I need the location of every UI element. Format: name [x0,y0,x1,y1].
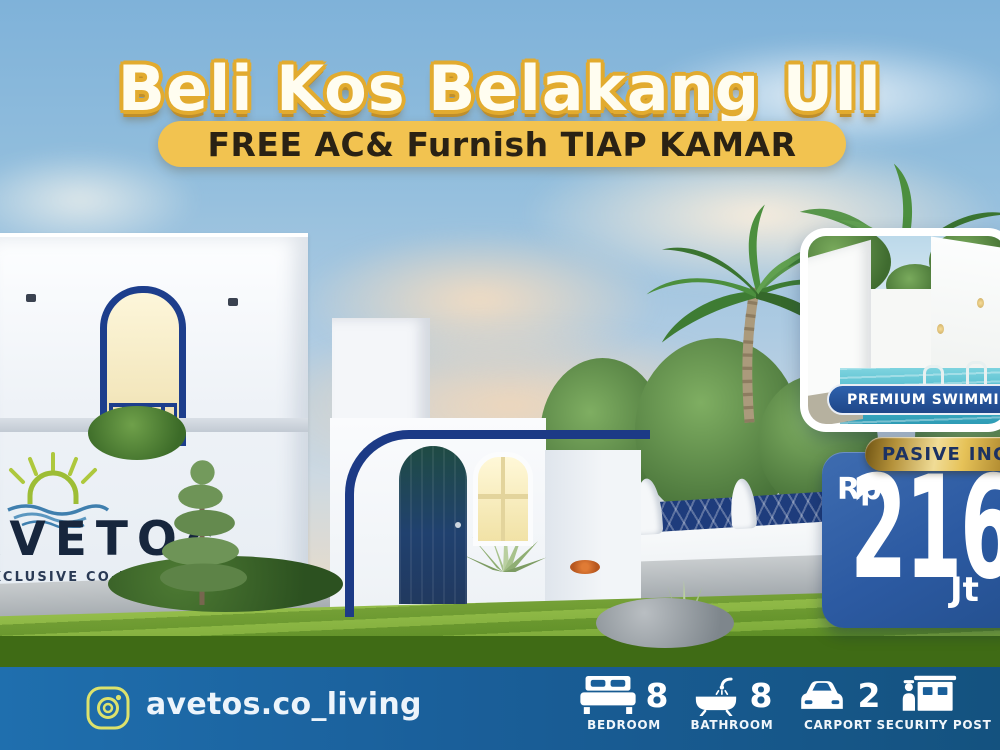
bedroom-label: BEDROOM [587,718,661,732]
wall-lamp [228,298,238,306]
footer-bar: avetos.co_living 8 BEDROOM [0,667,1000,750]
bathtub-icon [692,674,740,716]
amenity-bedroom: 8 BEDROOM [566,675,682,732]
price-unit: Jt [950,570,979,610]
car-icon [796,677,848,713]
entrance-window [473,452,533,546]
passive-income-badge: PASIVE INCOME [865,437,1000,471]
lawn [0,636,1000,668]
instagram-icon [84,684,132,732]
carport-label: CARPORT [804,718,872,732]
guard-post-icon [900,674,958,716]
rock [596,598,734,648]
bed-icon [580,676,636,714]
kos-advertisement-poster: ΛVETOς EXCLUSIVE CO-LIVING + PREMIUM SW [0,0,1000,750]
pool-ladder [966,361,987,386]
wall-lamp [26,294,36,302]
headline: Beli Kos Belakang UII [0,52,1000,125]
subheadline-pill: FREE AC& Furnish TIAP KAMAR [158,121,846,167]
pine-tree [150,438,255,610]
instagram-handle: avetos.co_living [146,687,422,722]
bathroom-count: 8 [750,676,773,715]
amenity-carport: 2 CARPORT [788,675,888,732]
pool-wall-lamp [937,324,944,334]
bathroom-label: BATHROOM [691,718,774,732]
flower-bush [570,560,600,574]
price-card: Rp 216 Jt [822,452,1000,628]
pool-label-pill: PREMIUM SWIMMING POOL [827,384,1000,415]
fence-pillar [729,478,757,529]
amenity-bathroom: 8 BATHROOM [676,675,788,732]
amenity-security-post: SECURITY POST [876,675,992,732]
door-handle [455,522,461,528]
pool-wall-lamp [977,298,984,308]
bedroom-count: 8 [646,676,669,715]
security-label: SECURITY POST [876,718,991,732]
